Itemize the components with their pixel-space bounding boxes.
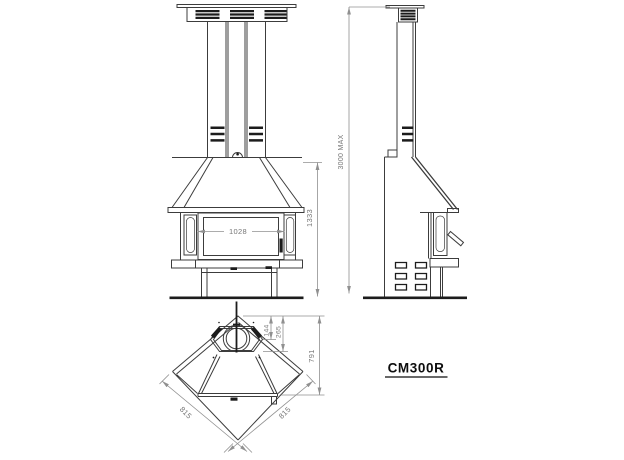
dimension-line xyxy=(228,381,313,452)
plan-depth-label: 791 xyxy=(307,349,316,362)
side-base-vents xyxy=(396,263,427,291)
plan-flue-depth-label: 265 xyxy=(276,326,283,338)
front-elevation-view: 1028 1333 xyxy=(168,5,322,300)
plan-screw-dot xyxy=(213,357,215,359)
model-label: CM300R xyxy=(388,361,445,376)
front-left-side-window xyxy=(187,218,195,253)
dimension-front-width: 1028 xyxy=(198,227,285,236)
dimension-plan-right-side: 815 xyxy=(228,375,316,453)
side-window xyxy=(436,216,445,252)
drawing-page: 1028 1333 3000 MAX xyxy=(0,0,624,460)
extension-line xyxy=(160,375,234,453)
plan-door-handle-mark xyxy=(231,398,238,401)
technical-drawing-canvas: 1028 1333 3000 MAX xyxy=(0,0,624,460)
side-elevation-view: 3000 MAX xyxy=(338,6,467,300)
front-right-side-window xyxy=(286,218,294,253)
plan-right-side-label: 815 xyxy=(277,405,293,421)
side-outline xyxy=(385,6,459,298)
side-max-height-label: 3000 MAX xyxy=(338,134,345,169)
front-outline xyxy=(168,5,304,297)
side-door-handle xyxy=(448,232,464,246)
plan-screw-dot xyxy=(253,322,255,324)
dimension-plan-left-side: 815 xyxy=(160,375,248,453)
plan-screw-dot xyxy=(259,357,261,359)
front-width-label: 1028 xyxy=(229,227,247,236)
side-hood-slope xyxy=(412,157,458,210)
plan-view: 144 265 791 815 815 xyxy=(160,302,325,453)
front-height-label: 1333 xyxy=(305,209,314,227)
plan-screw-dot xyxy=(218,322,220,324)
dimension-side-max-height: 3000 MAX xyxy=(338,7,390,294)
plan-left-side-label: 815 xyxy=(178,405,194,421)
plan-outline xyxy=(173,316,304,440)
dimension-line xyxy=(162,381,247,452)
dimension-front-height: 1333 xyxy=(303,163,322,297)
plan-flue-width-label: 144 xyxy=(264,324,271,336)
model-label-group: CM300R xyxy=(385,361,448,378)
